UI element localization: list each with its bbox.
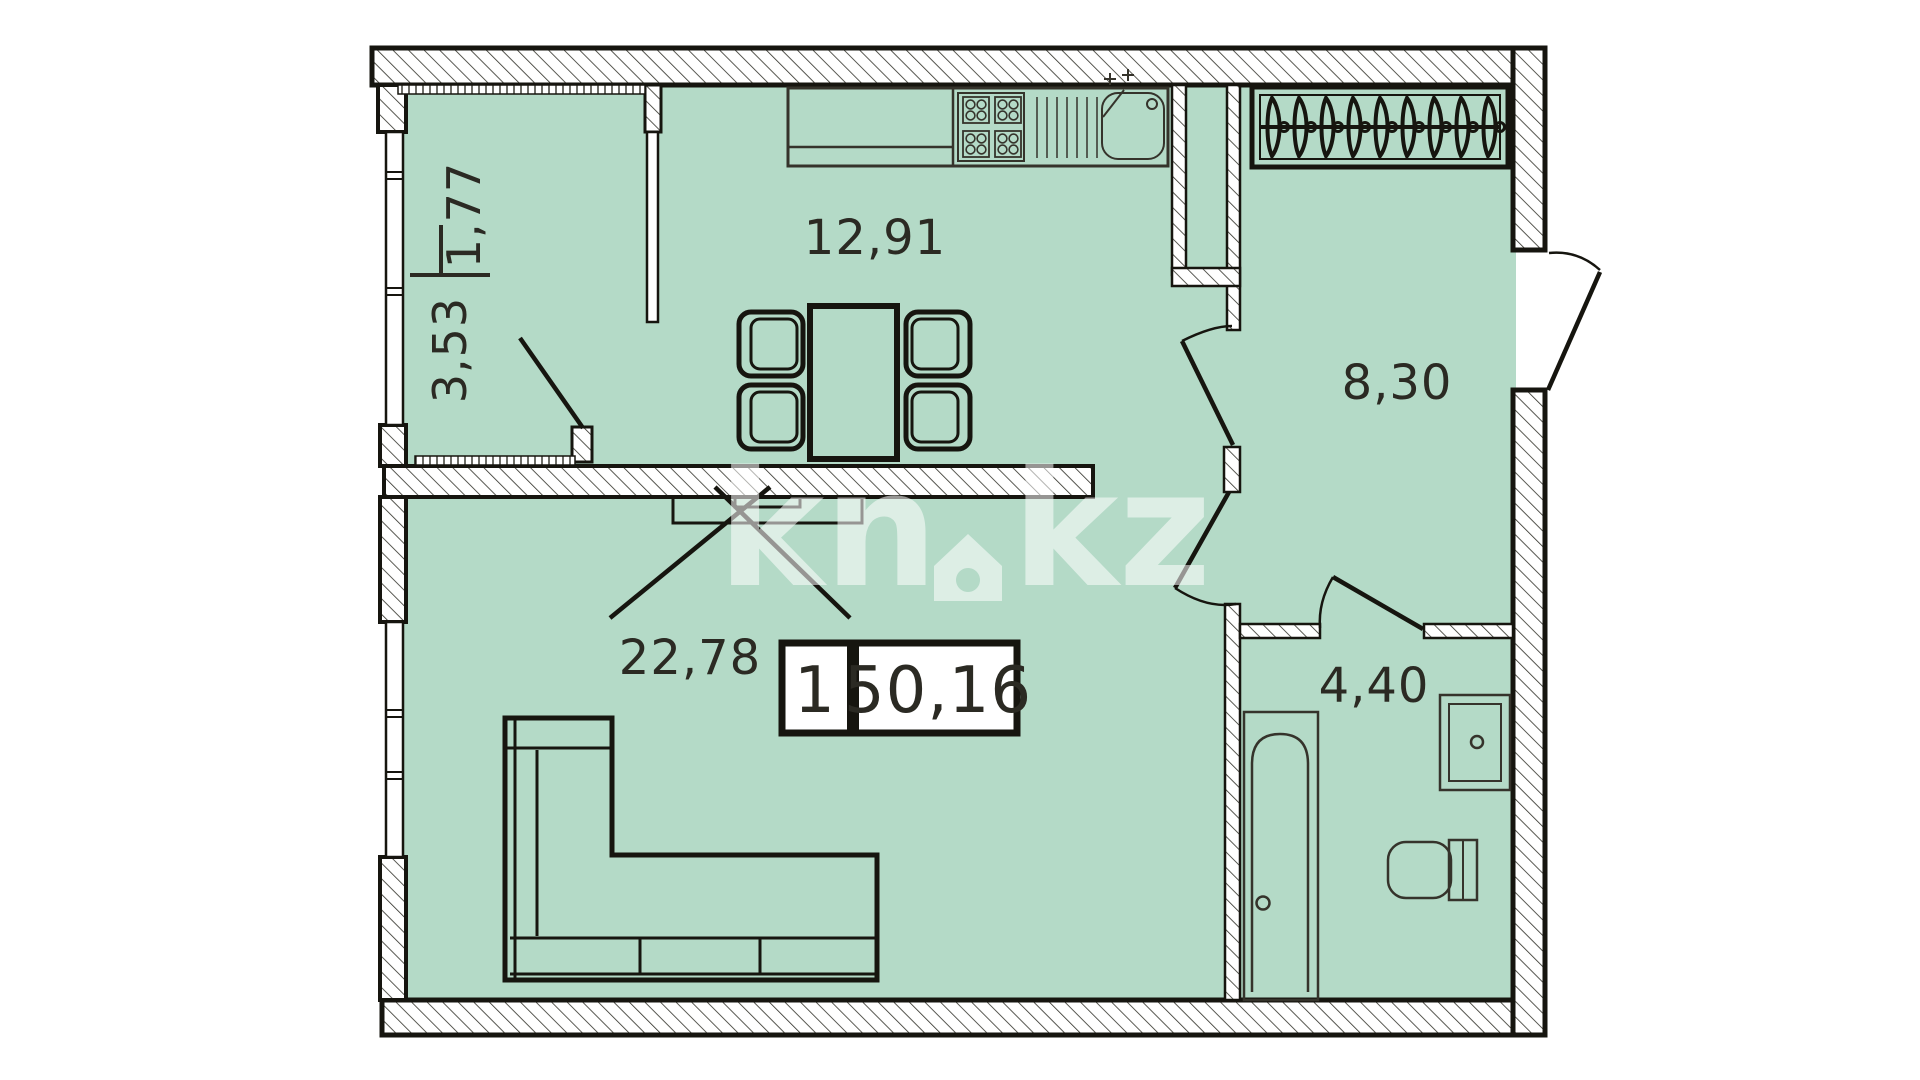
entrance-door: [1548, 253, 1600, 390]
floor-plan: kn kz: [0, 0, 1920, 1080]
balcony-reduced-area-label: 1,77: [437, 162, 491, 268]
floor-plan-drawing: kn kz: [0, 0, 1920, 1080]
wall-bottom: [382, 1000, 1545, 1035]
balcony-full-area-label: 3,53: [423, 297, 477, 403]
entrance-door-leaf: [1548, 272, 1600, 390]
entrance-door-arc: [1549, 253, 1600, 270]
wall-hall-bathroom-left: [1240, 624, 1320, 638]
wall-top: [372, 48, 1545, 85]
wall-door-post: [1224, 447, 1240, 492]
badge-rooms-count: 1: [794, 654, 836, 728]
wall-right-upper: [1513, 48, 1545, 250]
badge-total-area: 50,16: [844, 654, 1032, 728]
watermark-right-text: kz: [1012, 436, 1212, 623]
bathroom-area-label: 4,40: [1319, 658, 1430, 714]
wall-hall-bathroom-right: [1424, 624, 1513, 638]
living-room-window: [386, 622, 403, 857]
wall-vent-shaft-left: [1172, 85, 1186, 275]
apartment-floor: [398, 60, 1516, 1020]
living-area-label: 22,78: [619, 630, 761, 686]
wall-right-lower: [1513, 390, 1545, 1035]
wall-left-pier-2: [380, 497, 406, 622]
balcony-partition: [647, 132, 658, 322]
summary-badge: 1 50,16: [782, 643, 1032, 733]
chair-icon: [739, 312, 803, 376]
wall-balcony-block: [645, 85, 661, 132]
glazing-strip-bottom: [415, 456, 575, 465]
wall-left-pier-3: [380, 857, 406, 1000]
glazing-strip-top: [398, 85, 645, 94]
watermark-left-text: kn: [718, 436, 938, 623]
chair-icon: [739, 385, 803, 449]
chair-icon: [906, 385, 970, 449]
dining-set: [739, 306, 970, 459]
balcony-window: [386, 132, 403, 425]
dining-table-icon: [810, 306, 897, 459]
wall-vent-shaft-right: [1227, 85, 1240, 330]
chair-icon: [906, 312, 970, 376]
wall-vent-shaft-bottom: [1172, 268, 1240, 286]
hallway-area-label: 8,30: [1342, 355, 1453, 411]
kitchen-area-label: 12,91: [804, 210, 946, 266]
wall-living-bathroom: [1225, 604, 1240, 1000]
wall-left-pier-1: [380, 425, 406, 466]
